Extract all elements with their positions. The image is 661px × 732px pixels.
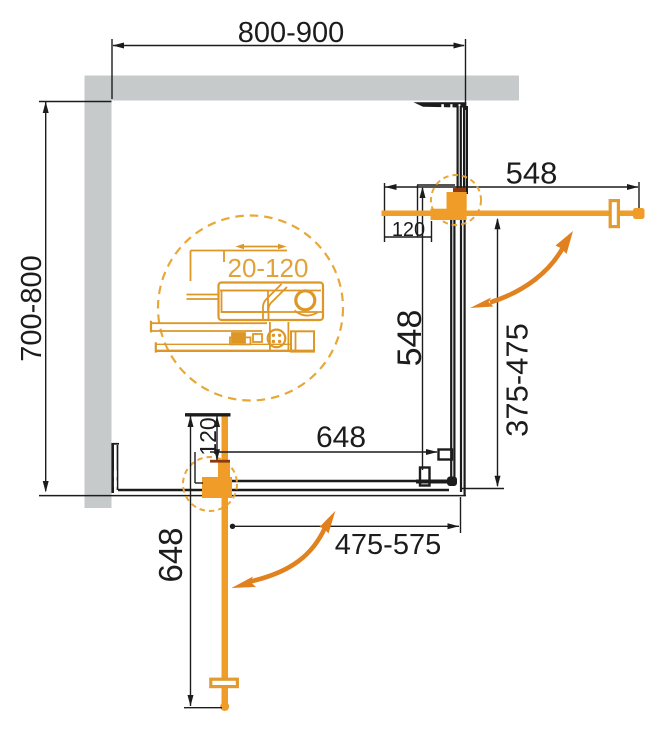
svg-text:475-575: 475-575	[335, 529, 441, 561]
svg-text:548: 548	[506, 156, 558, 191]
svg-text:648: 648	[316, 421, 366, 454]
svg-text:648: 648	[152, 527, 189, 582]
svg-text:700-800: 700-800	[16, 255, 48, 361]
svg-text:20-120: 20-120	[228, 253, 309, 283]
svg-text:375-475: 375-475	[500, 323, 535, 437]
svg-text:800-900: 800-900	[238, 17, 344, 49]
svg-text:120: 120	[195, 417, 221, 455]
svg-text:548: 548	[391, 310, 429, 367]
svg-text:120: 120	[392, 219, 425, 241]
